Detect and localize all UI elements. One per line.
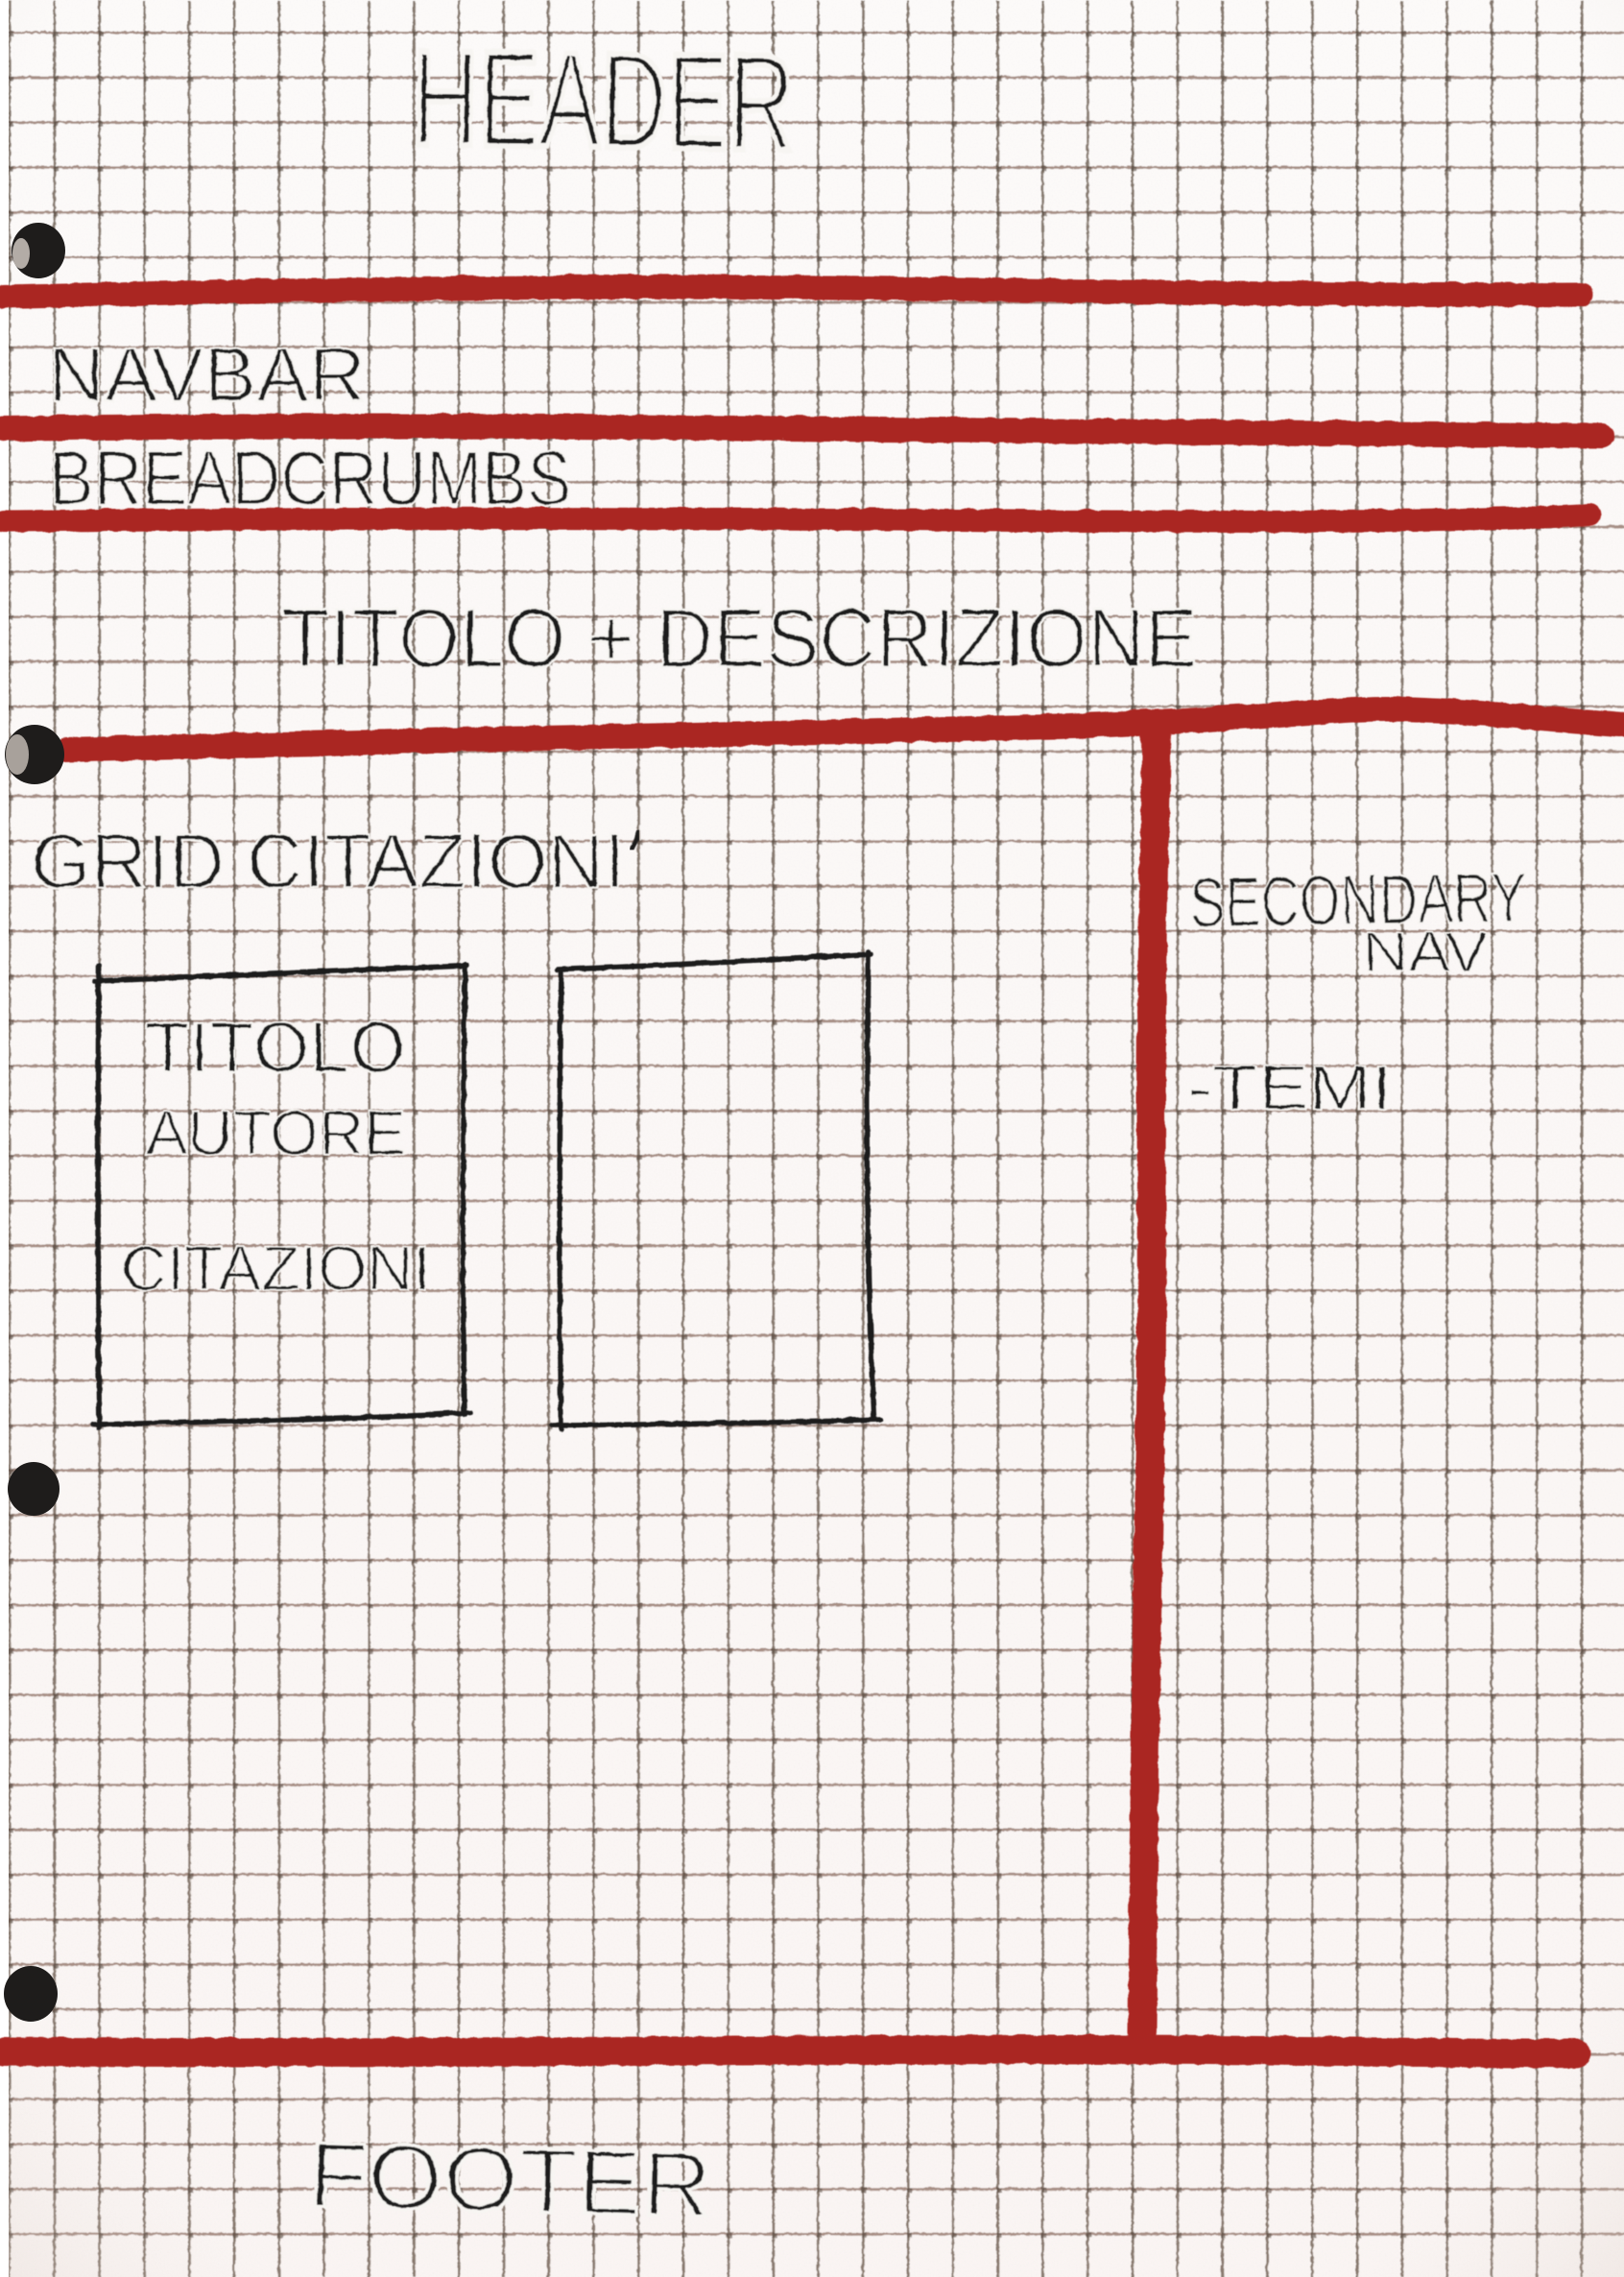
svg-text:BREADCRUMBS: BREADCRUMBS [48, 435, 571, 521]
svg-text:NAV: NAV [1362, 921, 1487, 983]
svg-text:CITAZIONI: CITAZIONI [120, 1232, 430, 1303]
svg-text:-TEMI: -TEMI [1186, 1051, 1392, 1122]
svg-text:TITOLO: TITOLO [145, 1007, 405, 1087]
svg-text:FOOTER: FOOTER [306, 2122, 712, 2237]
svg-text:HEADER: HEADER [411, 21, 795, 180]
svg-text:GRID CITAZIONI: GRID CITAZIONI [30, 818, 625, 904]
svg-text:NAVBAR: NAVBAR [47, 331, 365, 417]
svg-text:AUTORE: AUTORE [145, 1096, 405, 1167]
svg-text:TITOLO + DESCRIZIONE: TITOLO + DESCRIZIONE [280, 591, 1197, 684]
